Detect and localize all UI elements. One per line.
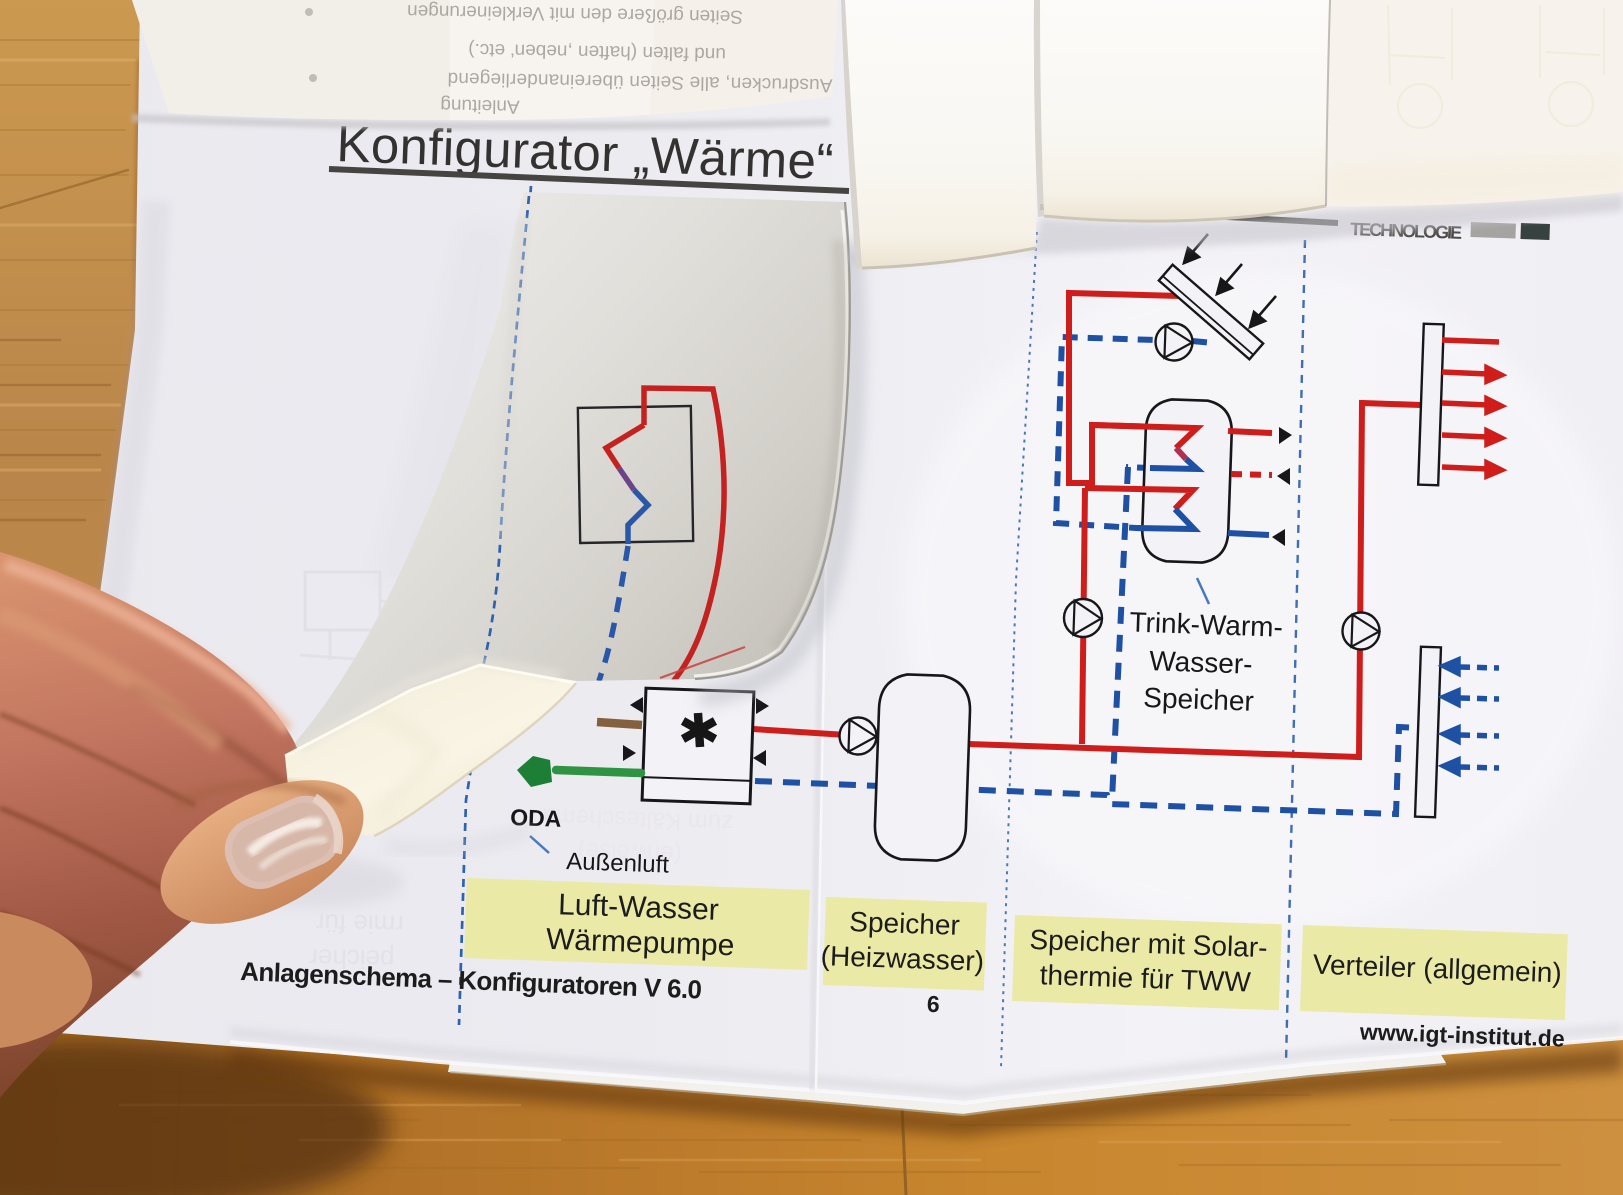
svg-text:(Heizwasser): (Heizwasser)	[820, 940, 984, 977]
svg-text:Luft-Wasser: Luft-Wasser	[558, 888, 720, 927]
svg-text:Wasser-: Wasser-	[1149, 645, 1253, 680]
svg-text:Wärmepumpe: Wärmepumpe	[545, 923, 734, 963]
svg-text:ODA: ODA	[510, 804, 562, 832]
svg-text:Trink-Warm-: Trink-Warm-	[1129, 606, 1283, 642]
svg-text:rmie für: rmie für	[315, 908, 404, 940]
svg-text:Speicher: Speicher	[849, 906, 961, 941]
svg-text:6: 6	[926, 991, 940, 1017]
svg-text:Außenluft: Außenluft	[566, 848, 670, 879]
svg-text:Anleitung: Anleitung	[440, 94, 520, 116]
svg-text:und falten (haften ,neben‘ etc: und falten (haften ,neben‘ etc.)	[468, 39, 726, 64]
svg-text:Speicher: Speicher	[1143, 682, 1255, 717]
